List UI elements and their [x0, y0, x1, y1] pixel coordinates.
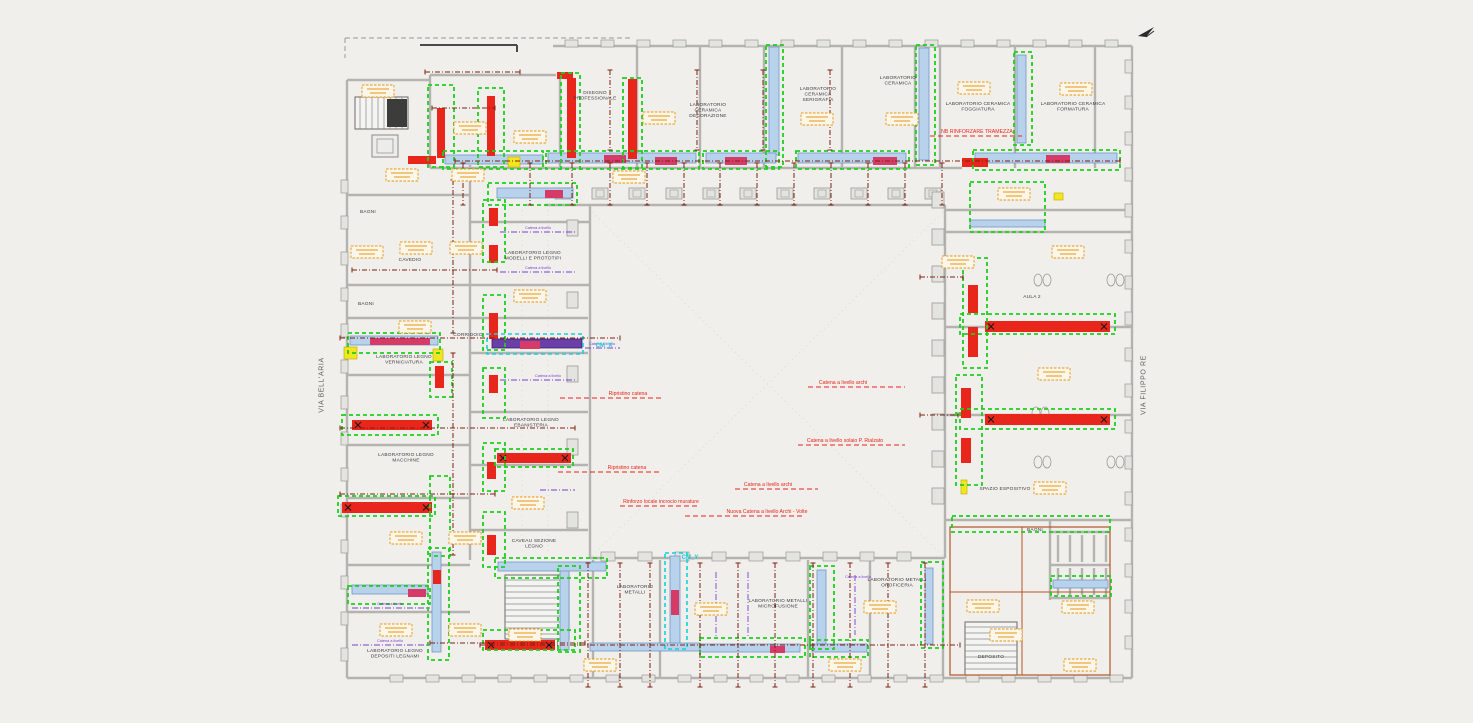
window-tick: [426, 675, 439, 682]
room-label-line: SERIGRAFIA: [802, 97, 834, 103]
orange-detail-tag: [1060, 83, 1092, 95]
column-base: [860, 552, 874, 561]
red-reinforced-wall: [968, 327, 978, 357]
window-tick: [1125, 168, 1132, 181]
red-annotation: Catena a livello archi: [819, 380, 867, 386]
orange-detail-tag: [990, 629, 1022, 641]
orange-detail-tag: [454, 122, 486, 134]
window-tick: [1125, 240, 1132, 253]
room-label-line: CAVEDIO: [399, 257, 422, 263]
magenta-patch: [370, 338, 430, 345]
room-label-line: CERAMICA: [885, 81, 913, 87]
orange-detail-tag: [514, 290, 546, 302]
room-label-line: DECORAZIONE: [689, 113, 726, 119]
fixture: [1116, 456, 1124, 468]
room-label-line: FORMATURA: [1057, 107, 1089, 113]
orange-detail-tag: [452, 169, 484, 181]
blue-consolidated-slab: [1017, 55, 1026, 143]
orange-detail-tag: [864, 601, 896, 613]
room-label-line: MACCHINE: [392, 458, 419, 464]
window-tick: [894, 675, 907, 682]
window-tick: [341, 540, 348, 553]
window-tick: [1125, 528, 1132, 541]
orange-detail-tag: [1038, 368, 1070, 380]
room-label-line: CERAMICA: [805, 92, 833, 98]
window-tick: [745, 40, 758, 47]
room-label-line: OROFICERIA: [881, 583, 913, 589]
orange-detail-tag: [449, 624, 481, 636]
orange-detail-tag: [512, 497, 544, 509]
window-tick: [1125, 420, 1132, 433]
north-arrow-icon: [1138, 27, 1154, 37]
yellow-patch: [1054, 193, 1063, 200]
orange-detail-tag: [380, 624, 412, 636]
red-reinforced-wall: [489, 313, 498, 339]
window-tick: [1125, 204, 1132, 217]
column-base: [749, 552, 763, 561]
window-tick: [786, 675, 799, 682]
room-label-line: PROFESSIONALE: [573, 96, 616, 102]
column-base: [777, 188, 793, 199]
room-label-line: AULA 2: [1023, 294, 1041, 300]
window-tick: [341, 324, 348, 337]
window-tick: [1125, 348, 1132, 361]
room-label-line: BAGNI: [1027, 527, 1043, 533]
window-tick: [1002, 675, 1015, 682]
orange-detail-tag: [449, 532, 481, 544]
room-label-line: EBANISTERIA: [514, 423, 549, 429]
orange-detail-tag: [695, 603, 727, 615]
window-tick: [925, 40, 938, 47]
floor-plan-page: DISEGNOPROFESSIONALELABORATORIOCERAMICAD…: [0, 0, 1473, 723]
yellow-patch: [433, 349, 443, 361]
room-label-line: VERNICIATURA: [385, 360, 423, 366]
red-annotation: Ripristino catena: [609, 391, 648, 397]
blue-consolidated-slab: [560, 568, 569, 650]
room-label-line: FOGGIATURA: [961, 107, 995, 113]
window-tick: [1125, 384, 1132, 397]
room-label-line: LABORATORIO METALLI: [868, 577, 927, 583]
orange-detail-tag: [643, 112, 675, 124]
window-tick: [341, 216, 348, 229]
column-base: [629, 188, 645, 199]
window-tick: [642, 675, 655, 682]
room-label-line: LABORATORIO: [880, 75, 916, 81]
red-annotation: Catena a livello archi: [744, 482, 792, 488]
magenta-patch: [545, 190, 563, 198]
room-label-line: MICROFUSIONE: [758, 604, 798, 610]
orange-detail-tag: [362, 85, 394, 97]
window-tick: [709, 40, 722, 47]
column-base: [567, 439, 578, 455]
purple-annotation: Catena a livello: [845, 575, 871, 579]
red-annotation: Catena a livello solaio P. Rialzato: [807, 438, 883, 444]
window-tick: [1125, 60, 1132, 73]
purple-annotation: Catena a livello: [377, 602, 403, 606]
room-label-line: LEGNO: [525, 544, 543, 550]
window-tick: [678, 675, 691, 682]
room-label-line: LABORATORIO METALLI: [749, 598, 808, 604]
orange-detail-tag: [942, 256, 974, 268]
street-label-via-bellaria: VIA BELL'ARIA: [319, 357, 326, 412]
orange-detail-tag: [584, 659, 616, 671]
window-tick: [637, 40, 650, 47]
column-base: [932, 303, 944, 319]
room-label: LABORATORIO METALLIOROFICERIA: [868, 577, 927, 589]
red-reinforced-wall: [487, 535, 496, 555]
purple-annotation: Catena a livello: [377, 639, 403, 643]
window-tick: [341, 576, 348, 589]
red-reinforced-wall: [433, 570, 441, 584]
window-tick: [341, 648, 348, 661]
purple-annotation: Catena a livello: [525, 266, 551, 270]
magenta-patch: [408, 589, 426, 597]
room-label: LABORATORIOCERAMICA: [880, 75, 916, 87]
orange-detail-tag: [613, 171, 645, 183]
window-tick: [570, 675, 583, 682]
window-tick: [462, 675, 475, 682]
purple-annotation: Catena a livello: [535, 374, 561, 378]
column-base: [932, 340, 944, 356]
room-label: LABORATORIO LEGNOEBANISTERIA: [503, 417, 559, 429]
window-tick: [1105, 40, 1118, 47]
window-tick: [341, 396, 348, 409]
blue-consolidated-slab: [432, 552, 441, 652]
red-reinforced-wall: [968, 285, 978, 313]
fixture: [1034, 456, 1042, 468]
yellow-patch: [961, 480, 967, 494]
room-label-line: MODELLI E PROTOTIPI: [505, 256, 562, 262]
stair-core: [387, 99, 407, 127]
room-label-line: LABORATORIO: [690, 102, 726, 108]
room-label: CAVEDIO: [399, 257, 422, 263]
orange-detail-tag: [958, 82, 990, 94]
window-tick: [822, 675, 835, 682]
blue-consolidated-slab: [919, 48, 929, 160]
column-base: [666, 188, 682, 199]
window-tick: [341, 288, 348, 301]
blue-consolidated-slab: [769, 47, 779, 155]
window-tick: [1125, 564, 1132, 577]
red-reinforced-wall: [961, 438, 971, 463]
room-label: BAGNI: [358, 301, 374, 307]
blue-consolidated-slab: [970, 220, 1045, 227]
window-tick: [1110, 675, 1123, 682]
room-label-line: DEPOSITO: [978, 654, 1004, 660]
window-tick: [565, 40, 578, 47]
purple-annotation: Catena a livello: [525, 226, 551, 230]
column-base: [932, 377, 944, 393]
room-label-line: LABORATORIO CERAMICA: [1041, 101, 1106, 107]
window-tick: [673, 40, 686, 47]
room-label-line: DEPOSITI LEGNAMI: [371, 654, 420, 660]
room-label: LABORATORIOCERAMICADECORAZIONE: [689, 102, 726, 119]
orange-detail-tag: [351, 246, 383, 258]
red-reinforced-wall: [497, 453, 571, 463]
column-base: [638, 552, 652, 561]
orange-detail-tag: [399, 321, 431, 333]
blue-consolidated-slab: [1053, 580, 1108, 588]
magenta-patch: [770, 646, 785, 653]
orange-detail-tag: [514, 131, 546, 143]
orange-detail-tag: [1064, 659, 1096, 671]
orange-detail-tag: [998, 188, 1030, 200]
red-reinforced-wall: [489, 245, 498, 263]
red-annotation: Ripristino catena: [608, 465, 647, 471]
cm-label: CM_X: [596, 343, 613, 349]
column-base: [740, 188, 756, 199]
red-reinforced-wall: [487, 96, 495, 156]
window-tick: [341, 360, 348, 373]
room-label: LABORATORIOCERAMICASERIGRAFIA: [800, 86, 836, 103]
room-label: LABORATORIO LEGNODEPOSITI LEGNAMI: [367, 648, 423, 660]
orange-detail-tag: [386, 169, 418, 181]
column-base: [601, 552, 615, 561]
column-base: [703, 188, 719, 199]
room-label: SPAZIO ESPOSITIVO: [979, 486, 1030, 492]
window-tick: [390, 675, 403, 682]
column-base: [932, 266, 944, 282]
window-tick: [1074, 675, 1087, 682]
window-tick: [1038, 675, 1051, 682]
floor-plan-drawing: DISEGNOPROFESSIONALELABORATORIOCERAMICAD…: [0, 0, 1473, 723]
room-label: LABORATORIOMETALLI: [617, 584, 653, 596]
room-label-line: LABORATORIO LEGNO: [378, 452, 434, 458]
red-reinforced-wall: [489, 208, 498, 226]
room-label: BAGNI: [360, 209, 376, 215]
orange-detail-tag: [829, 659, 861, 671]
column-base: [712, 552, 726, 561]
red-reinforced-wall: [435, 366, 444, 388]
window-tick: [534, 675, 547, 682]
room-label: LABORATORIO METALLIMICROFUSIONE: [749, 598, 808, 610]
room-label-line: DISEGNO: [583, 90, 607, 96]
window-tick: [997, 40, 1010, 47]
window-tick: [858, 675, 871, 682]
column-base: [823, 552, 837, 561]
orange-detail-tag: [1052, 246, 1084, 258]
window-tick: [341, 612, 348, 625]
window-tick: [1125, 636, 1132, 649]
red-annotation: NB RINFORZARE TRAMEZZA: [941, 129, 1013, 135]
red-reinforced-wall: [628, 79, 637, 159]
cm-label: CM_Y: [682, 555, 699, 561]
window-tick: [1125, 312, 1132, 325]
street-label-via-filippo-re: VIA FILIPPO RE: [1141, 355, 1148, 415]
room-label: LABORATORIO LEGNOVERNICIATURA: [376, 354, 432, 366]
red-annotation: Rinforzo locale incrocio murature: [623, 499, 699, 505]
room-label: LABORATORIO LEGNOMODELLI E PROTOTIPI: [505, 250, 562, 262]
room-label: LABORATORIO LEGNOMACCHINE: [378, 452, 434, 464]
red-annotation: Nuova Catena a livello Archi - Volte: [726, 509, 807, 515]
room-label-line: SPAZIO ESPOSITIVO: [979, 486, 1030, 492]
red-reinforced-wall: [985, 414, 1110, 425]
room-label-line: LABORATORIO LEGNO: [505, 250, 561, 256]
column-base: [592, 188, 608, 199]
column-base: [567, 292, 578, 308]
orange-detail-tag: [1034, 482, 1066, 494]
orange-detail-tag: [801, 113, 833, 125]
room-label: DEPOSITO: [978, 654, 1004, 660]
window-tick: [930, 675, 943, 682]
room-label: BAGNI: [1027, 527, 1043, 533]
red-reinforced-wall: [567, 78, 576, 158]
window-tick: [1033, 40, 1046, 47]
column-base: [567, 220, 578, 236]
fixture: [1116, 274, 1124, 286]
window-tick: [961, 40, 974, 47]
orange-detail-tag: [400, 242, 432, 254]
magenta-patch: [671, 590, 679, 615]
fixture: [1107, 456, 1115, 468]
window-tick: [1069, 40, 1082, 47]
room-label-line: METALLI: [624, 590, 645, 596]
column-base: [932, 488, 944, 504]
room-label: CAVEAU SEZIONELEGNO: [512, 538, 557, 550]
blue-consolidated-slab: [817, 570, 826, 644]
room-label: LABORATORIO CERAMICAFOGGIATURA: [946, 101, 1011, 113]
magenta-patch: [520, 341, 540, 349]
column-base: [897, 552, 911, 561]
column-base: [932, 414, 944, 430]
window-tick: [1125, 456, 1132, 469]
room-label: CORRIDOIO: [453, 332, 483, 338]
column-base: [786, 552, 800, 561]
elevator-shaft: [372, 135, 398, 157]
yellow-patch: [508, 157, 520, 167]
column-base: [814, 188, 830, 199]
window-tick: [853, 40, 866, 47]
column-base: [932, 229, 944, 245]
column-base: [851, 188, 867, 199]
window-tick: [1125, 132, 1132, 145]
room-label-line: LABORATORIO: [617, 584, 653, 590]
room-label: LABORATORIO CERAMICAFORMATURA: [1041, 101, 1106, 113]
red-reinforced-wall: [489, 375, 498, 393]
window-tick: [889, 40, 902, 47]
room-label-line: BAGNI: [360, 209, 376, 215]
red-reinforced-wall: [961, 388, 971, 418]
red-reinforced-wall: [985, 321, 1110, 332]
window-tick: [1125, 600, 1132, 613]
window-tick: [714, 675, 727, 682]
room-label-line: BAGNI: [358, 301, 374, 307]
fixture: [1107, 274, 1115, 286]
room-label-line: CORRIDOIO: [453, 332, 483, 338]
room-label-line: CAVEAU SEZIONE: [512, 538, 557, 544]
orange-detail-tag: [1062, 601, 1094, 613]
window-tick: [750, 675, 763, 682]
magenta-patch: [1046, 155, 1070, 163]
window-tick: [341, 180, 348, 193]
fixture: [1043, 274, 1051, 286]
room-label-line: LABORATORIO LEGNO: [503, 417, 559, 423]
room-label-line: CERAMICA: [695, 108, 723, 114]
window-tick: [1125, 492, 1132, 505]
room-label-line: LABORATORIO: [800, 86, 836, 92]
window-tick: [966, 675, 979, 682]
room-label: AULA 2: [1023, 294, 1041, 300]
red-reinforced-wall: [962, 158, 988, 167]
orange-detail-tag: [509, 629, 541, 641]
room-label-line: LABORATORIO LEGNO: [376, 354, 432, 360]
window-tick: [1125, 96, 1132, 109]
window-tick: [341, 468, 348, 481]
fixture: [1034, 274, 1042, 286]
column-base: [567, 512, 578, 528]
orange-detail-tag: [390, 532, 422, 544]
red-reinforced-wall: [408, 156, 436, 164]
window-tick: [341, 252, 348, 265]
room-label-line: LABORATORIO CERAMICA: [946, 101, 1011, 107]
red-reinforced-wall: [342, 502, 432, 513]
room-label-line: LABORATORIO LEGNO: [367, 648, 423, 654]
window-tick: [817, 40, 830, 47]
window-tick: [606, 675, 619, 682]
window-tick: [601, 40, 614, 47]
orange-detail-tag: [967, 600, 999, 612]
window-tick: [498, 675, 511, 682]
column-base: [888, 188, 904, 199]
orange-detail-tag: [886, 113, 918, 125]
fixture: [1043, 456, 1051, 468]
window-tick: [1125, 276, 1132, 289]
orange-detail-tag: [450, 242, 482, 254]
column-base: [932, 451, 944, 467]
